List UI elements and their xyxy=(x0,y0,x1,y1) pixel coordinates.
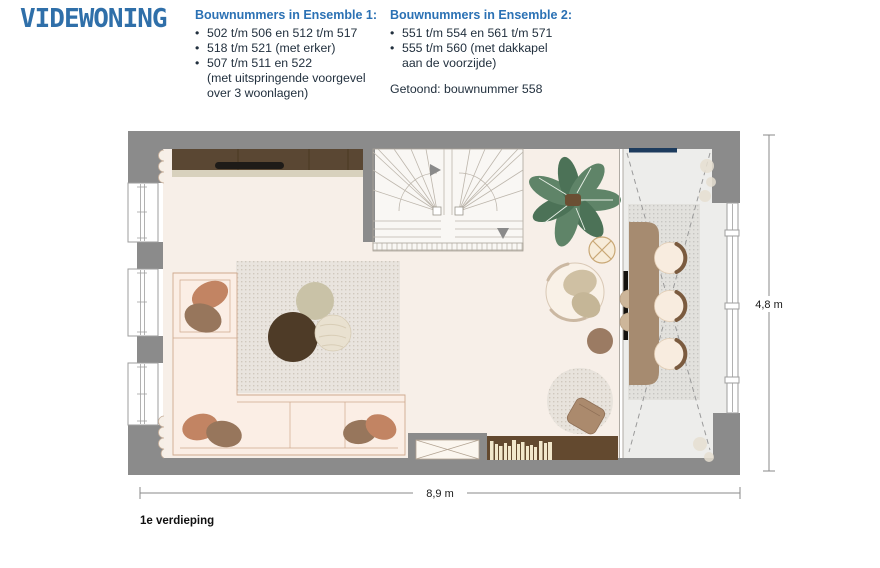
wall-bottom xyxy=(128,458,740,475)
wall-pier-left-2 xyxy=(137,336,163,363)
curtain-top-left xyxy=(159,150,165,183)
pouf xyxy=(587,328,613,354)
page: { "bullet_char": "\u2022", "logo": { "te… xyxy=(0,0,880,568)
window-left-2 xyxy=(128,269,158,336)
tv-cabinet xyxy=(172,149,363,177)
wall-top xyxy=(128,131,740,149)
side-table xyxy=(589,237,615,263)
window-left-1 xyxy=(128,183,158,242)
wall-top-left xyxy=(128,131,163,183)
tv-icon xyxy=(215,162,284,169)
lounge-chair xyxy=(546,263,605,323)
dimension-height: 4,8 m xyxy=(749,135,789,471)
dimension-height-label: 4,8 m xyxy=(755,299,783,311)
left-windows xyxy=(128,183,158,425)
dimension-width: 8,9 m xyxy=(140,485,740,501)
wall-bottom-right xyxy=(713,413,740,475)
dormer-window xyxy=(629,148,677,153)
floor-plan: 4,8 m 8,9 m 1e verdieping xyxy=(0,0,880,568)
window-left-3 xyxy=(128,363,158,425)
floor-label: 1e verdieping xyxy=(140,515,214,527)
wall-top-right xyxy=(712,131,740,203)
wall-pier-left-1 xyxy=(137,242,163,269)
bookshelf xyxy=(487,436,618,460)
dimension-width-label: 8,9 m xyxy=(426,488,454,500)
convector-niche xyxy=(408,433,487,460)
dining-chairs xyxy=(655,243,686,370)
window-right xyxy=(725,203,739,413)
